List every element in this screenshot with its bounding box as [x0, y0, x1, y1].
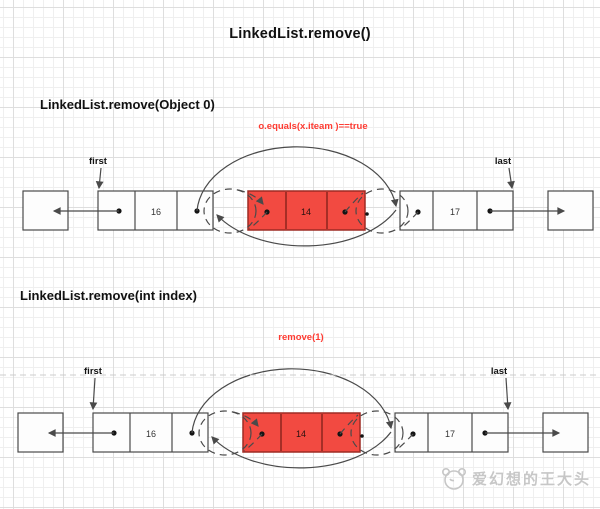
node-14-value-1: 14 [301, 207, 311, 217]
last-label-2: last [491, 366, 508, 377]
node-17-value-2: 17 [445, 429, 455, 439]
annotation-remove1: remove(1) [278, 332, 323, 343]
first-label-1: first [89, 156, 108, 167]
panda-watermark-icon [439, 465, 469, 492]
node-16-value-1: 16 [151, 207, 161, 217]
watermark-text: 爱幻想的王大头 [472, 468, 591, 489]
node-14-value-2: 14 [296, 429, 306, 439]
node-17-value-1: 17 [450, 207, 460, 217]
node-16-value-2: 16 [146, 429, 156, 439]
last-label-1: last [495, 156, 512, 167]
linkedlist-diagram: first last o.equals(x.iteam )==true firs… [0, 0, 600, 509]
annotation-equals: o.equals(x.iteam )==true [258, 121, 367, 132]
first-label-2: first [84, 366, 103, 377]
watermark: 爱幻想的王大头 [439, 465, 591, 492]
